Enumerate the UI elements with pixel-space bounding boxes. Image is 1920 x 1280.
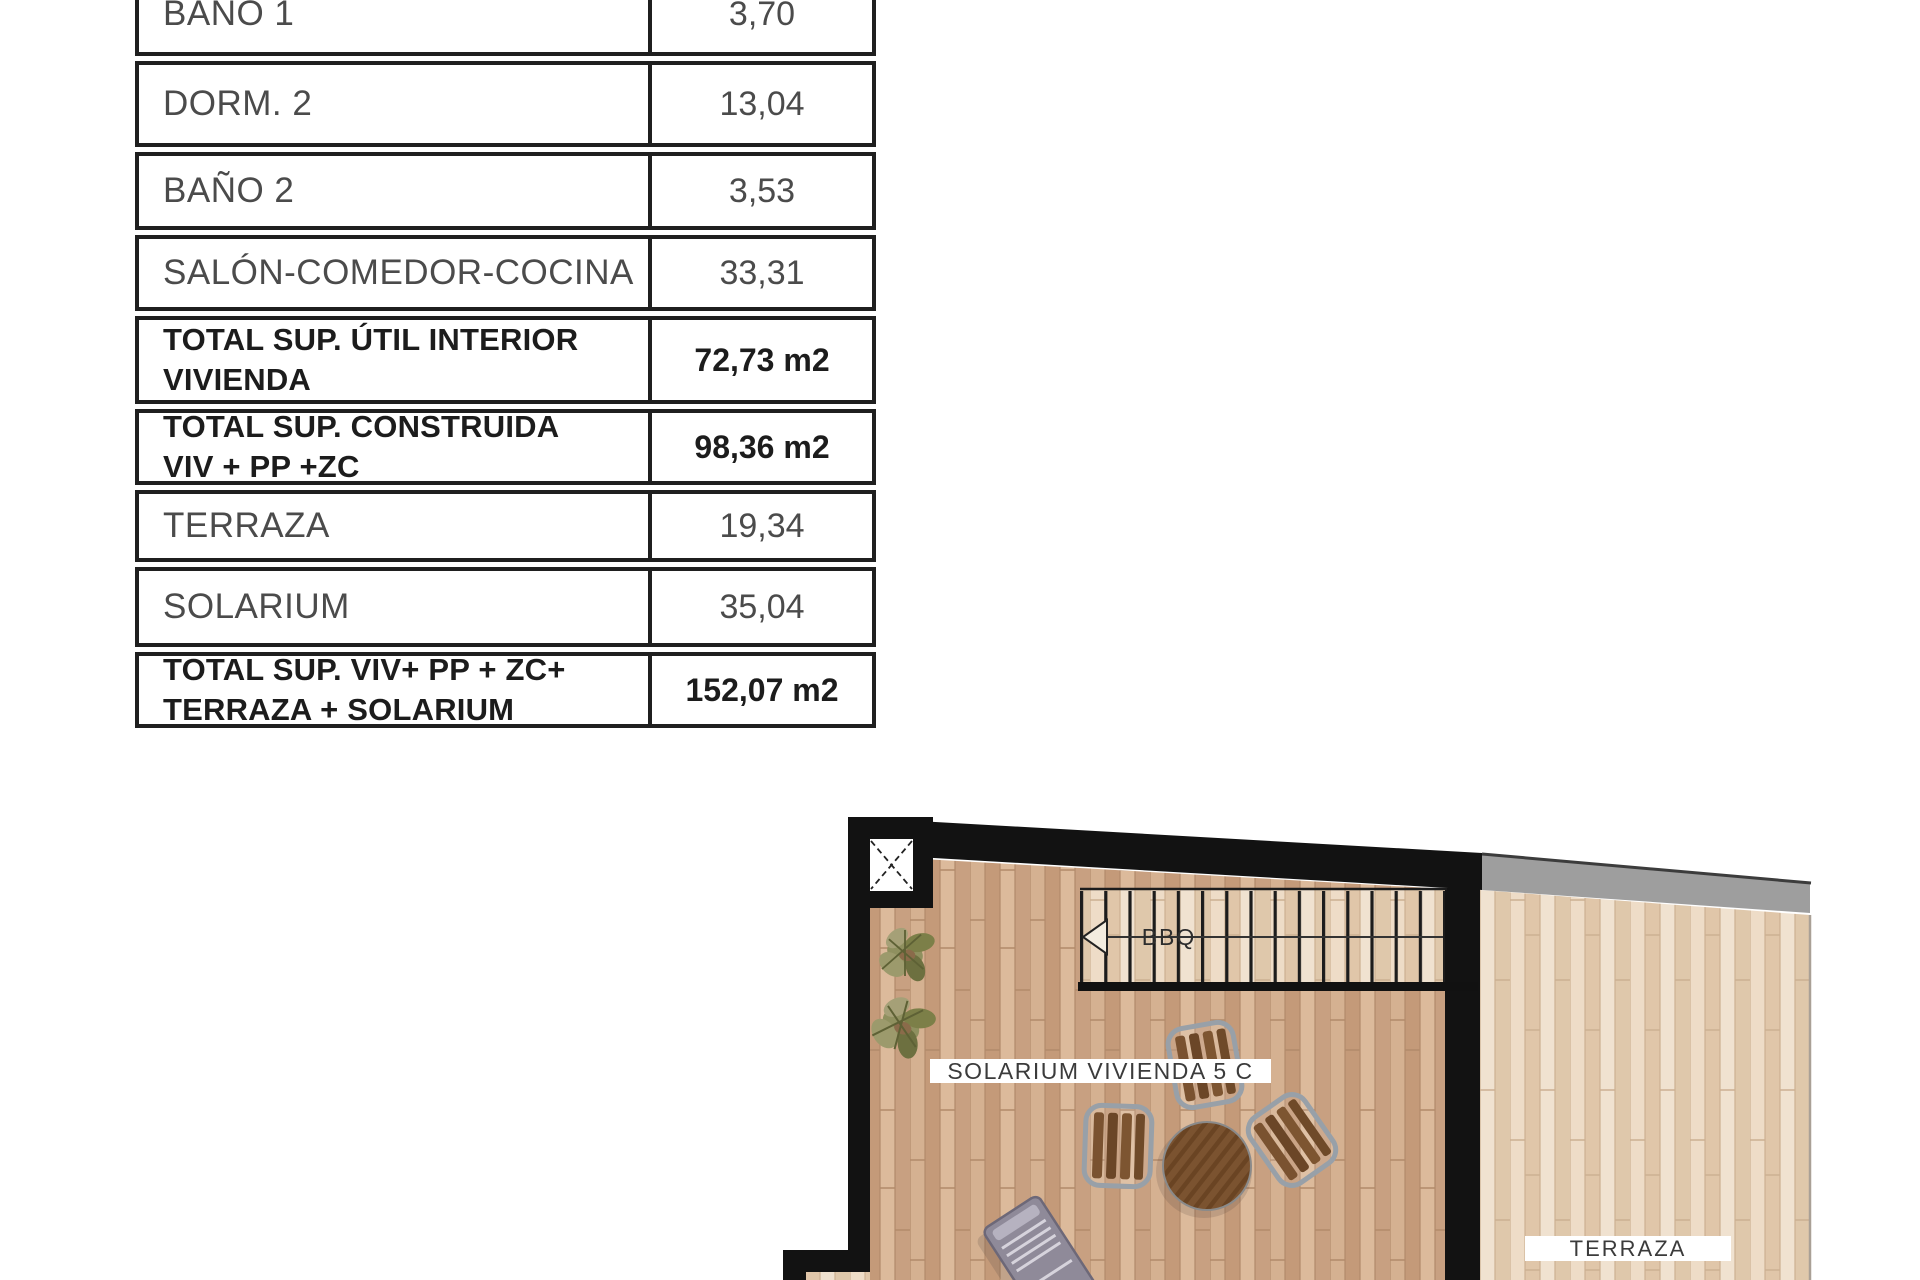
- room-name: TOTAL SUP. VIV+ PP + ZC+: [163, 650, 642, 690]
- round-table: [1163, 1122, 1251, 1210]
- room-name: TOTAL SUP. CONSTRUIDA: [163, 407, 642, 447]
- terraza-room-label: TERRAZA: [1525, 1236, 1731, 1261]
- chair: [1084, 1105, 1153, 1187]
- room-name: DORM. 2: [163, 85, 642, 123]
- room-name: TERRAZA: [163, 507, 642, 545]
- solarium-room-label: SOLARIUM VIVIENDA 5 C: [930, 1059, 1271, 1083]
- floorplan-drawing: [770, 800, 1920, 1280]
- page: BAÑO 1 3,70 DORM. 2 13,04 BAÑO 2 3,53 SA…: [0, 0, 1920, 1280]
- area-value-cell: 152,07 m2: [648, 656, 872, 724]
- table-row: TERRAZA 19,34: [135, 490, 876, 562]
- bbq-label: BBQ: [1130, 921, 1208, 953]
- room-name-line2: VIV + PP +ZC: [163, 447, 642, 487]
- room-name: SALÓN-COMEDOR-COCINA: [163, 254, 642, 292]
- table-row-total: TOTAL SUP. VIV+ PP + ZC+ TERRAZA + SOLAR…: [135, 652, 876, 728]
- room-name: SOLARIUM: [163, 588, 642, 626]
- table-row-total: TOTAL SUP. CONSTRUIDA VIV + PP +ZC 98,36…: [135, 409, 876, 485]
- area-table: BAÑO 1 3,70 DORM. 2 13,04 BAÑO 2 3,53 SA…: [135, 0, 876, 733]
- area-value-cell: 72,73 m2: [648, 320, 872, 400]
- room-name-cell: SALÓN-COMEDOR-COCINA: [139, 239, 648, 307]
- room-name-cell: DORM. 2: [139, 65, 648, 143]
- room-name-cell: TOTAL SUP. CONSTRUIDA VIV + PP +ZC: [139, 413, 648, 481]
- area-value-cell: 13,04: [648, 65, 872, 143]
- lower-terrace-sliver: [803, 1272, 870, 1280]
- room-name-cell: TOTAL SUP. VIV+ PP + ZC+ TERRAZA + SOLAR…: [139, 656, 648, 724]
- room-name: BAÑO 1: [163, 0, 642, 33]
- room-name-cell: SOLARIUM: [139, 571, 648, 643]
- area-value-cell: 35,04: [648, 571, 872, 643]
- room-name-cell: BAÑO 1: [139, 0, 648, 52]
- elevator-shaft-icon: [848, 817, 933, 908]
- table-row: BAÑO 2 3,53: [135, 152, 876, 230]
- room-name-cell: TOTAL SUP. ÚTIL INTERIOR VIVIENDA: [139, 320, 648, 400]
- table-row: SOLARIUM 35,04: [135, 567, 876, 647]
- room-name-line2: TERRAZA + SOLARIUM: [163, 690, 642, 730]
- area-value-cell: 19,34: [648, 494, 872, 558]
- area-value-cell: 3,53: [648, 156, 872, 226]
- terraza-floor: [1480, 890, 1810, 1280]
- room-name: TOTAL SUP. ÚTIL INTERIOR: [163, 320, 642, 360]
- area-value-cell: 33,31: [648, 239, 872, 307]
- table-row: SALÓN-COMEDOR-COCINA 33,31: [135, 235, 876, 311]
- table-row-total: TOTAL SUP. ÚTIL INTERIOR VIVIENDA 72,73 …: [135, 316, 876, 404]
- table-row: DORM. 2 13,04: [135, 61, 876, 147]
- area-value-cell: 3,70: [648, 0, 872, 52]
- room-name-cell: TERRAZA: [139, 494, 648, 558]
- area-value-cell: 98,36 m2: [648, 413, 872, 481]
- room-name-cell: BAÑO 2: [139, 156, 648, 226]
- room-name-line2: VIVIENDA: [163, 360, 642, 400]
- room-name: BAÑO 2: [163, 172, 642, 210]
- table-row: BAÑO 1 3,70: [135, 0, 876, 56]
